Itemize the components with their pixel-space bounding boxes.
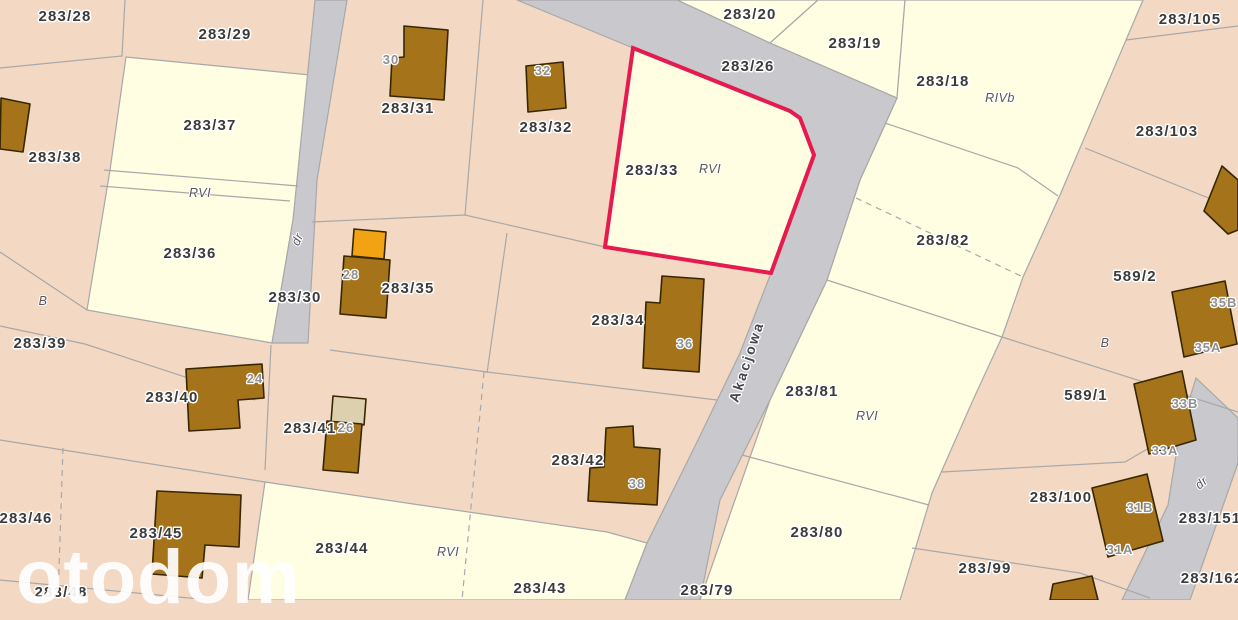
parcel-label-283-99: 283/99 xyxy=(958,560,1011,577)
landuse-label-b: B xyxy=(1101,336,1110,350)
parcel-label-589-2: 589/2 xyxy=(1113,268,1157,285)
parcel-label-283-38: 283/38 xyxy=(28,149,81,166)
parcel-label-283-37: 283/37 xyxy=(183,117,236,134)
parcel-label-283-44: 283/44 xyxy=(315,540,368,557)
building-number-35b: 35B xyxy=(1211,295,1238,310)
parcel-label-283-39: 283/39 xyxy=(13,335,66,352)
parcel-label-283-33: 283/33 xyxy=(625,162,678,179)
parcel-label-283-81: 283/81 xyxy=(785,383,838,400)
building-number-31a: 31A xyxy=(1107,542,1134,557)
otodom-watermark: otodom xyxy=(16,540,301,616)
parcel-label-283-35: 283/35 xyxy=(381,280,434,297)
parcel-label-283-29: 283/29 xyxy=(198,26,251,43)
parcel-label-283-40: 283/40 xyxy=(145,389,198,406)
landuse-label-rvi: RVI xyxy=(699,162,721,176)
parcel-label-283-20: 283/20 xyxy=(723,6,776,23)
landuse-label-rvi: RVI xyxy=(189,186,211,200)
parcel-label-283-41: 283/41 xyxy=(283,420,336,437)
building-number-32: 32 xyxy=(535,63,551,78)
building-number-31b: 31B xyxy=(1127,500,1154,515)
parcel-label-283-26: 283/26 xyxy=(721,58,774,75)
parcel-label-283-28: 283/28 xyxy=(38,8,91,25)
building-number-30: 30 xyxy=(383,52,399,67)
cadastral-map-canvas[interactable]: 283/28283/29283/37283/38283/31283/32283/… xyxy=(0,0,1238,600)
building-number-36: 36 xyxy=(677,336,693,351)
building-number-28: 28 xyxy=(343,267,359,282)
parcel-label-283-46: 283/46 xyxy=(0,510,53,527)
landuse-label-rvi: RVI xyxy=(437,545,459,559)
parcel-label-283-80: 283/80 xyxy=(790,524,843,541)
building-number-24: 24 xyxy=(247,371,263,386)
parcel-label-283-162: 283/162 xyxy=(1181,570,1238,587)
parcel-label-283-30: 283/30 xyxy=(268,289,321,306)
parcel-label-283-151: 283/151 xyxy=(1179,510,1238,527)
parcel-label-283-18: 283/18 xyxy=(916,73,969,90)
parcel-label-283-105: 283/105 xyxy=(1159,11,1222,28)
building-28-roof-shape xyxy=(352,229,386,259)
cadastral-map: 283/28283/29283/37283/38283/31283/32283/… xyxy=(0,0,1238,600)
building-number-33a: 33A xyxy=(1152,443,1179,458)
building-number-26: 26 xyxy=(338,420,354,435)
parcel-label-283-19: 283/19 xyxy=(828,35,881,52)
parcel-label-283-79: 283/79 xyxy=(680,582,733,599)
parcel-label-283-34: 283/34 xyxy=(591,312,644,329)
landuse-label-rivb: RIVb xyxy=(985,91,1015,105)
parcel-label-283-100: 283/100 xyxy=(1030,489,1093,506)
building-number-35a: 35A xyxy=(1195,340,1222,355)
parcel-label-283-43: 283/43 xyxy=(513,580,566,597)
building-number-33b: 33B xyxy=(1172,396,1199,411)
parcel-label-589-1: 589/1 xyxy=(1064,387,1108,404)
parcel-label-283-31: 283/31 xyxy=(381,100,434,117)
parcel-label-283-36: 283/36 xyxy=(163,245,216,262)
parcel-label-283-103: 283/103 xyxy=(1136,123,1199,140)
landuse-label-b: B xyxy=(39,294,48,308)
parcel-label-283-82: 283/82 xyxy=(916,232,969,249)
parcel-label-283-42: 283/42 xyxy=(551,452,604,469)
building-number-38: 38 xyxy=(629,476,645,491)
parcel-label-283-32: 283/32 xyxy=(519,119,572,136)
landuse-label-rvi: RVI xyxy=(856,409,878,423)
